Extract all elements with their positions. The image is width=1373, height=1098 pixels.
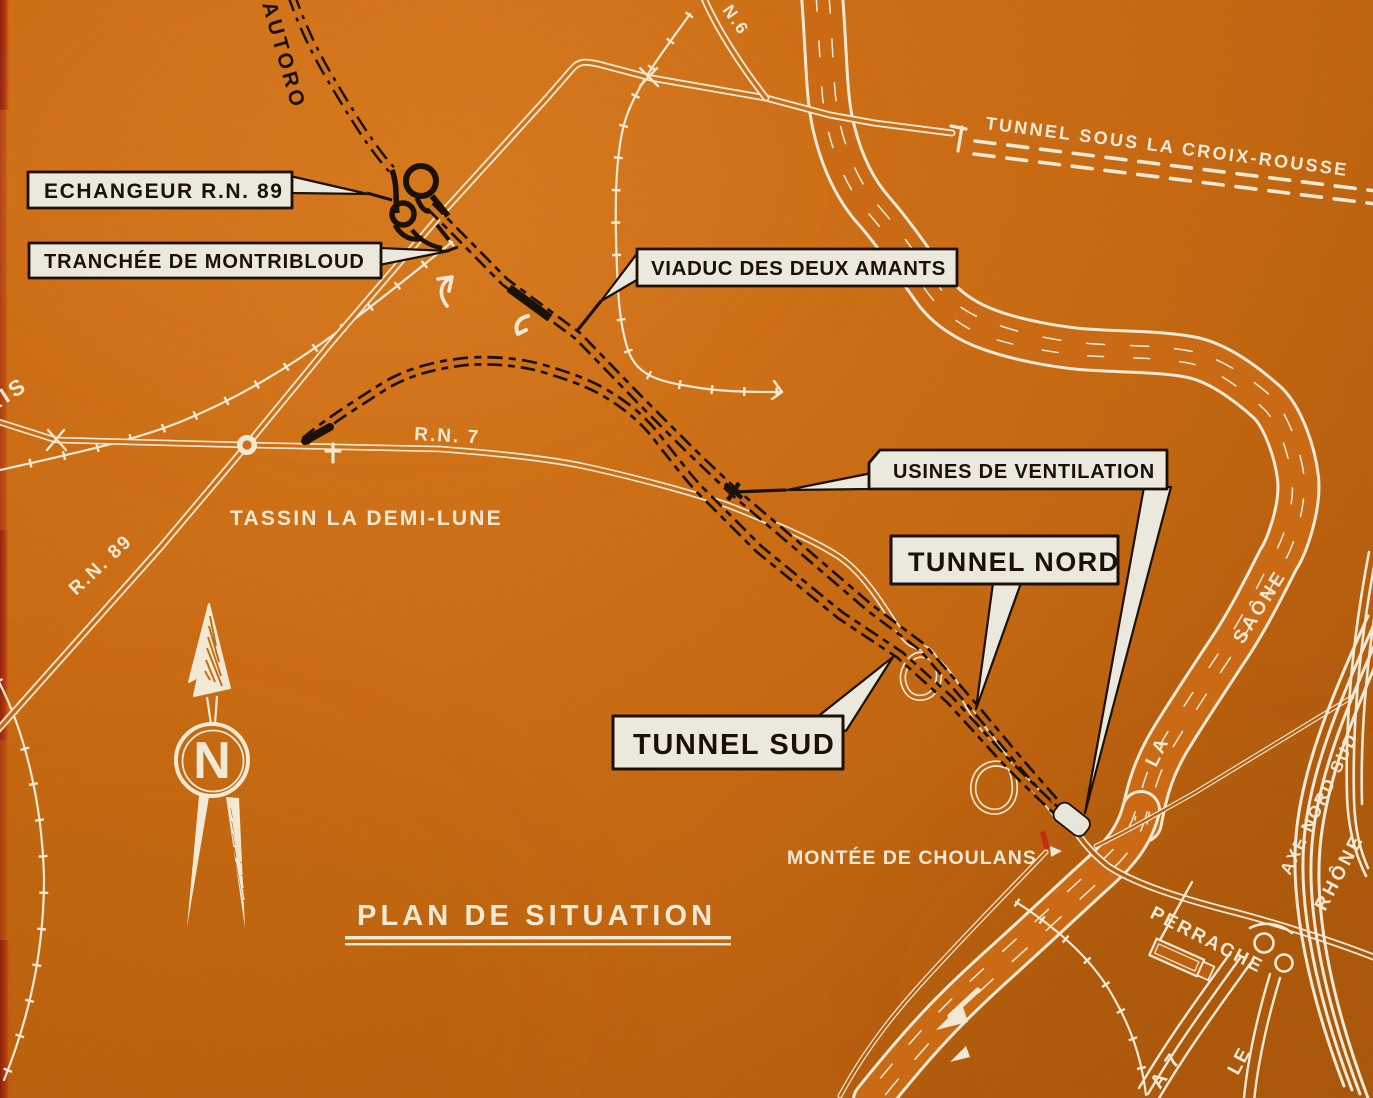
svg-text:TUNNEL NORD: TUNNEL NORD [908, 547, 1119, 577]
svg-text:PLAN DE SITUATION: PLAN DE SITUATION [357, 900, 716, 932]
svg-text:TASSIN LA DEMI-LUNE: TASSIN LA DEMI-LUNE [230, 507, 503, 530]
svg-text:TUNNEL SUD: TUNNEL SUD [633, 729, 835, 761]
svg-text:R.N. 7: R.N. 7 [414, 424, 481, 448]
svg-text:MONTÉE DE CHOULANS: MONTÉE DE CHOULANS [787, 846, 1037, 869]
svg-text:TRANCHÉE DE MONTRIBLOUD: TRANCHÉE DE MONTRIBLOUD [44, 250, 365, 273]
svg-text:USINES DE VENTILATION: USINES DE VENTILATION [893, 461, 1155, 483]
svg-text:VIADUC DES DEUX AMANTS: VIADUC DES DEUX AMANTS [651, 257, 946, 280]
svg-text:ECHANGEUR R.N. 89: ECHANGEUR R.N. 89 [44, 180, 284, 203]
svg-text:N: N [193, 732, 231, 790]
